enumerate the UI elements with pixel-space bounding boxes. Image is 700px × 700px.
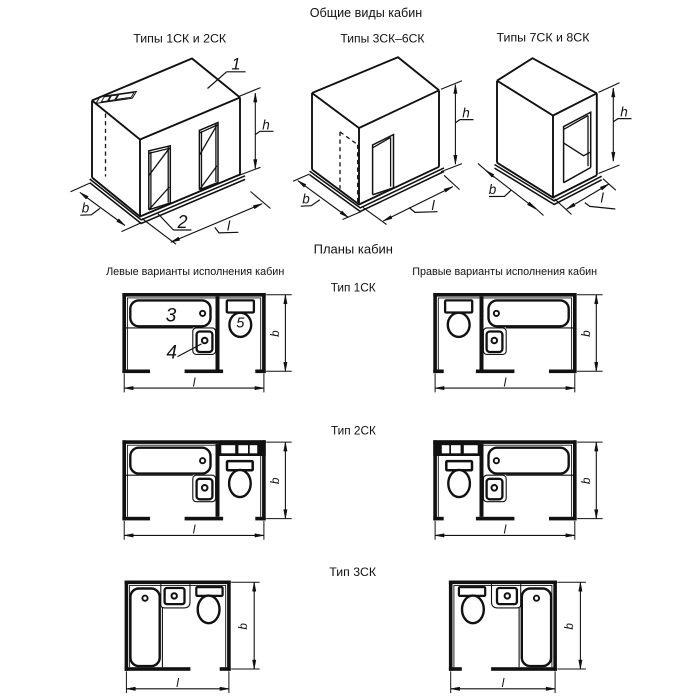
svg-text:b: b: [564, 623, 576, 630]
svg-text:4: 4: [166, 342, 177, 363]
svg-text:Тип 3СК: Тип 3СК: [329, 565, 377, 579]
svg-text:b: b: [270, 477, 282, 484]
svg-text:Левые варианты исполнения каби: Левые варианты исполнения кабин: [106, 266, 284, 278]
svg-text:l: l: [504, 375, 507, 389]
svg-text:l: l: [176, 676, 179, 690]
svg-text:l: l: [193, 523, 196, 537]
svg-text:b: b: [82, 200, 90, 215]
svg-text:b: b: [581, 477, 593, 484]
svg-text:Типы 7СК и 8СК: Типы 7СК и 8СК: [497, 31, 591, 45]
svg-text:b: b: [302, 192, 310, 207]
svg-text:l: l: [502, 676, 505, 690]
svg-text:h: h: [620, 105, 628, 120]
svg-text:Типы 1СК и 2СК: Типы 1СК и 2СК: [133, 31, 227, 45]
svg-text:1: 1: [231, 56, 240, 74]
svg-text:2: 2: [176, 212, 187, 232]
svg-text:b: b: [489, 182, 497, 197]
svg-text:Общие виды кабин: Общие виды кабин: [310, 6, 423, 20]
svg-text:5: 5: [236, 315, 245, 331]
svg-text:b: b: [238, 623, 250, 630]
svg-text:Тип 2СК: Тип 2СК: [331, 423, 376, 437]
svg-text:3: 3: [166, 305, 177, 326]
svg-text:b: b: [581, 330, 593, 337]
svg-text:Планы кабин: Планы кабин: [314, 242, 393, 257]
svg-text:b: b: [270, 330, 282, 337]
svg-text:Тип 1СК: Тип 1СК: [331, 280, 376, 294]
svg-text:Правые варианты исполнения каб: Правые варианты исполнения кабин: [412, 266, 597, 278]
svg-text:Типы 3СК–6СК: Типы 3СК–6СК: [340, 32, 424, 46]
svg-text:l: l: [504, 523, 507, 537]
svg-text:l: l: [193, 375, 196, 389]
svg-text:h: h: [262, 117, 270, 132]
svg-text:h: h: [462, 106, 470, 121]
